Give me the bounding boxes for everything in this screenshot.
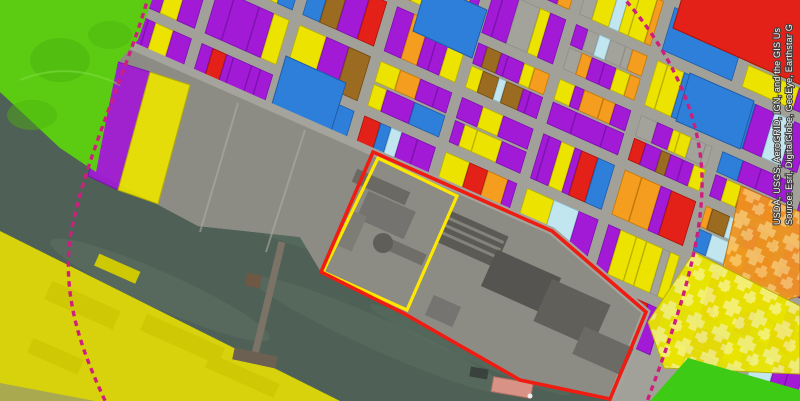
storage-tank [373, 233, 393, 253]
map-canvas[interactable]: Source: Esri, DigitalGlobe, GeoEye, Eart… [0, 0, 800, 401]
attribution-line-1: Source: Esri, DigitalGlobe, GeoEye, Eart… [784, 24, 794, 225]
map-screenshot: Source: Esri, DigitalGlobe, GeoEye, Eart… [0, 0, 800, 401]
attribution-line-2: USDA, USGS, AeroGRID, IGN, and the GIS U… [772, 27, 782, 225]
